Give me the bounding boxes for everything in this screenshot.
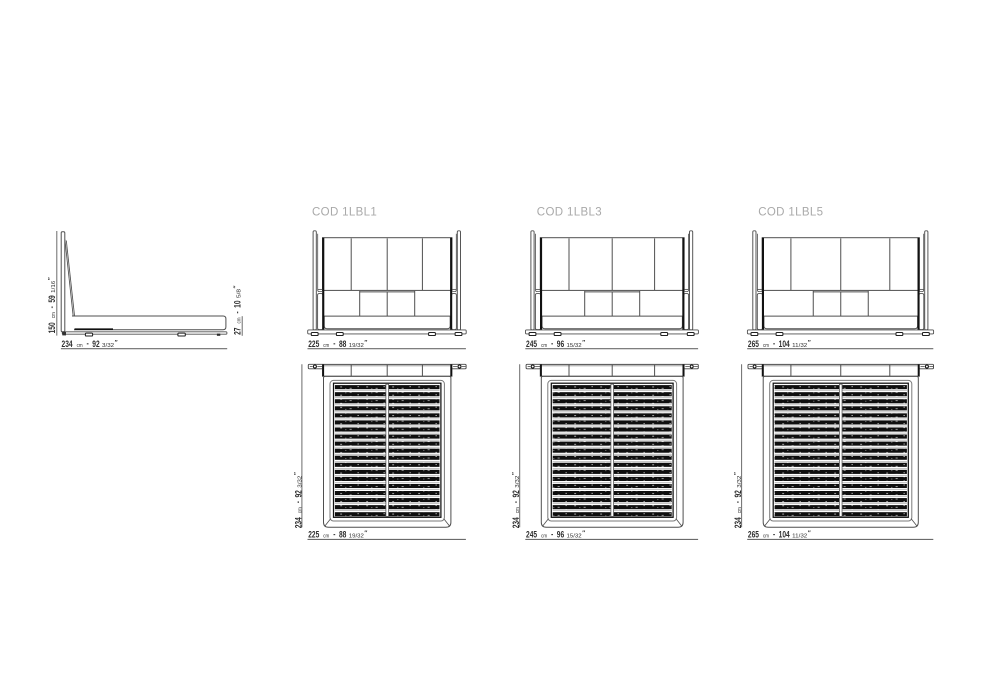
svg-text:″: ″ xyxy=(511,472,518,475)
svg-text:265: 265 xyxy=(748,339,759,349)
svg-text:cm: cm xyxy=(541,534,547,540)
svg-text:234: 234 xyxy=(62,339,74,349)
svg-text:11/32: 11/32 xyxy=(792,343,807,349)
svg-text:cm: cm xyxy=(763,534,769,540)
svg-text:″: ″ xyxy=(808,530,811,537)
svg-text:96: 96 xyxy=(557,339,564,349)
svg-text:245: 245 xyxy=(526,339,537,349)
svg-text:″: ″ xyxy=(233,285,240,288)
svg-text:cm: cm xyxy=(541,343,547,349)
svg-text:225: 225 xyxy=(308,530,319,540)
svg-text:92: 92 xyxy=(92,339,99,349)
svg-text:COD 1LBL5: COD 1LBL5 xyxy=(758,206,823,218)
svg-text:59: 59 xyxy=(47,295,57,302)
svg-text:15/32: 15/32 xyxy=(567,343,582,349)
svg-text:10: 10 xyxy=(233,300,243,307)
svg-text:225: 225 xyxy=(308,339,319,349)
svg-text:265: 265 xyxy=(748,530,759,540)
svg-text:″: ″ xyxy=(582,339,585,346)
svg-text:″: ″ xyxy=(733,472,740,475)
svg-text:″: ″ xyxy=(294,472,301,475)
svg-text:cm: cm xyxy=(323,534,329,540)
svg-text:27: 27 xyxy=(233,328,243,335)
svg-text:11/32: 11/32 xyxy=(792,534,807,540)
svg-text:88: 88 xyxy=(339,339,346,349)
svg-text:245: 245 xyxy=(526,530,537,540)
svg-text:96: 96 xyxy=(557,530,564,540)
svg-text:″: ″ xyxy=(364,339,367,346)
svg-text:cm: cm xyxy=(77,343,83,349)
svg-text:88: 88 xyxy=(339,530,346,540)
svg-text:19/32: 19/32 xyxy=(349,534,364,540)
svg-text:″: ″ xyxy=(808,339,811,346)
svg-text:104: 104 xyxy=(779,530,791,540)
svg-text:3/32: 3/32 xyxy=(102,343,114,349)
svg-text:5/8: 5/8 xyxy=(237,289,243,298)
svg-text:COD 1LBL3: COD 1LBL3 xyxy=(537,206,602,218)
svg-text:″: ″ xyxy=(115,339,118,346)
svg-text:104: 104 xyxy=(779,339,791,349)
svg-text:COD 1LBL1: COD 1LBL1 xyxy=(312,206,377,218)
svg-text:″: ″ xyxy=(48,277,55,280)
svg-text:cm: cm xyxy=(323,343,329,349)
svg-text:″: ″ xyxy=(582,530,585,537)
svg-text:cm: cm xyxy=(763,343,769,349)
svg-text:15/32: 15/32 xyxy=(567,534,582,540)
svg-text:19/32: 19/32 xyxy=(349,343,364,349)
svg-text:″: ″ xyxy=(364,530,367,537)
svg-text:150: 150 xyxy=(47,322,57,333)
